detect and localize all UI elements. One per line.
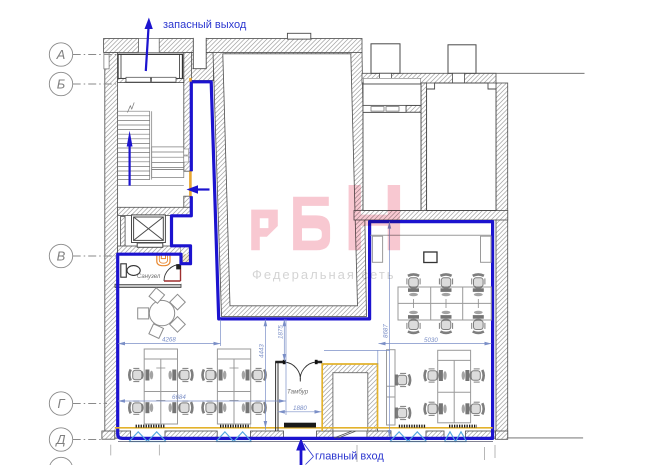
svg-text:главный вход: главный вход (315, 451, 384, 463)
svg-text:4268: 4268 (162, 336, 176, 343)
svg-text:5030: 5030 (424, 337, 438, 344)
svg-text:6684: 6684 (172, 394, 186, 401)
svg-text:В: В (57, 249, 66, 264)
svg-text:запасный выход: запасный выход (163, 19, 247, 31)
svg-text:Д: Д (54, 432, 65, 447)
svg-text:Тамбур: Тамбур (287, 389, 309, 396)
svg-text:А: А (56, 47, 66, 62)
svg-text:Г: Г (57, 396, 65, 411)
svg-text:Б: Б (57, 77, 66, 92)
svg-text:1880: 1880 (293, 405, 307, 412)
svg-text:8687: 8687 (383, 324, 390, 338)
svg-text:4443: 4443 (259, 344, 266, 358)
svg-text:Федеральная сеть: Федеральная сеть (252, 267, 396, 282)
svg-text:Санузел: Санузел (137, 274, 161, 280)
svg-text:1875: 1875 (278, 325, 285, 339)
